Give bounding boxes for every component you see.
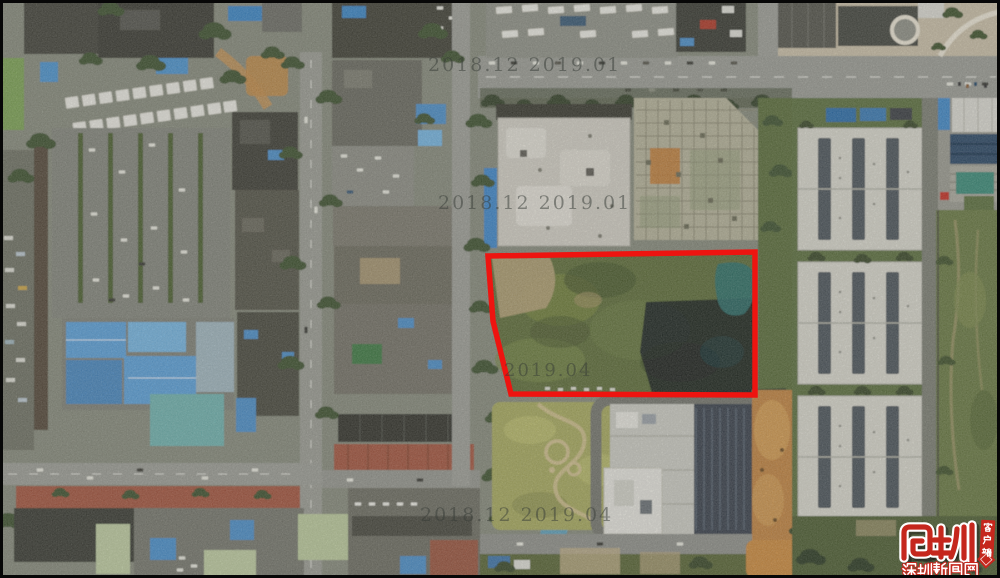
watermark-middle: 2018.12 2019.01: [438, 192, 631, 214]
photo-grain-light: [0, 0, 1000, 578]
watermark-top: 2018.12 2019.01: [428, 54, 621, 76]
satellite-photo: 2018.12 2019.01 2018.12 2019.01 2019.04 …: [0, 0, 1000, 578]
logo-mark-icon: [904, 525, 975, 564]
watermark-parcel: 2019.04: [504, 360, 592, 381]
watermark-bottom: 2018.12 2019.04: [420, 504, 613, 526]
news-photo-stage: 2018.12 2019.01 2018.12 2019.01 2019.04 …: [0, 0, 1000, 578]
